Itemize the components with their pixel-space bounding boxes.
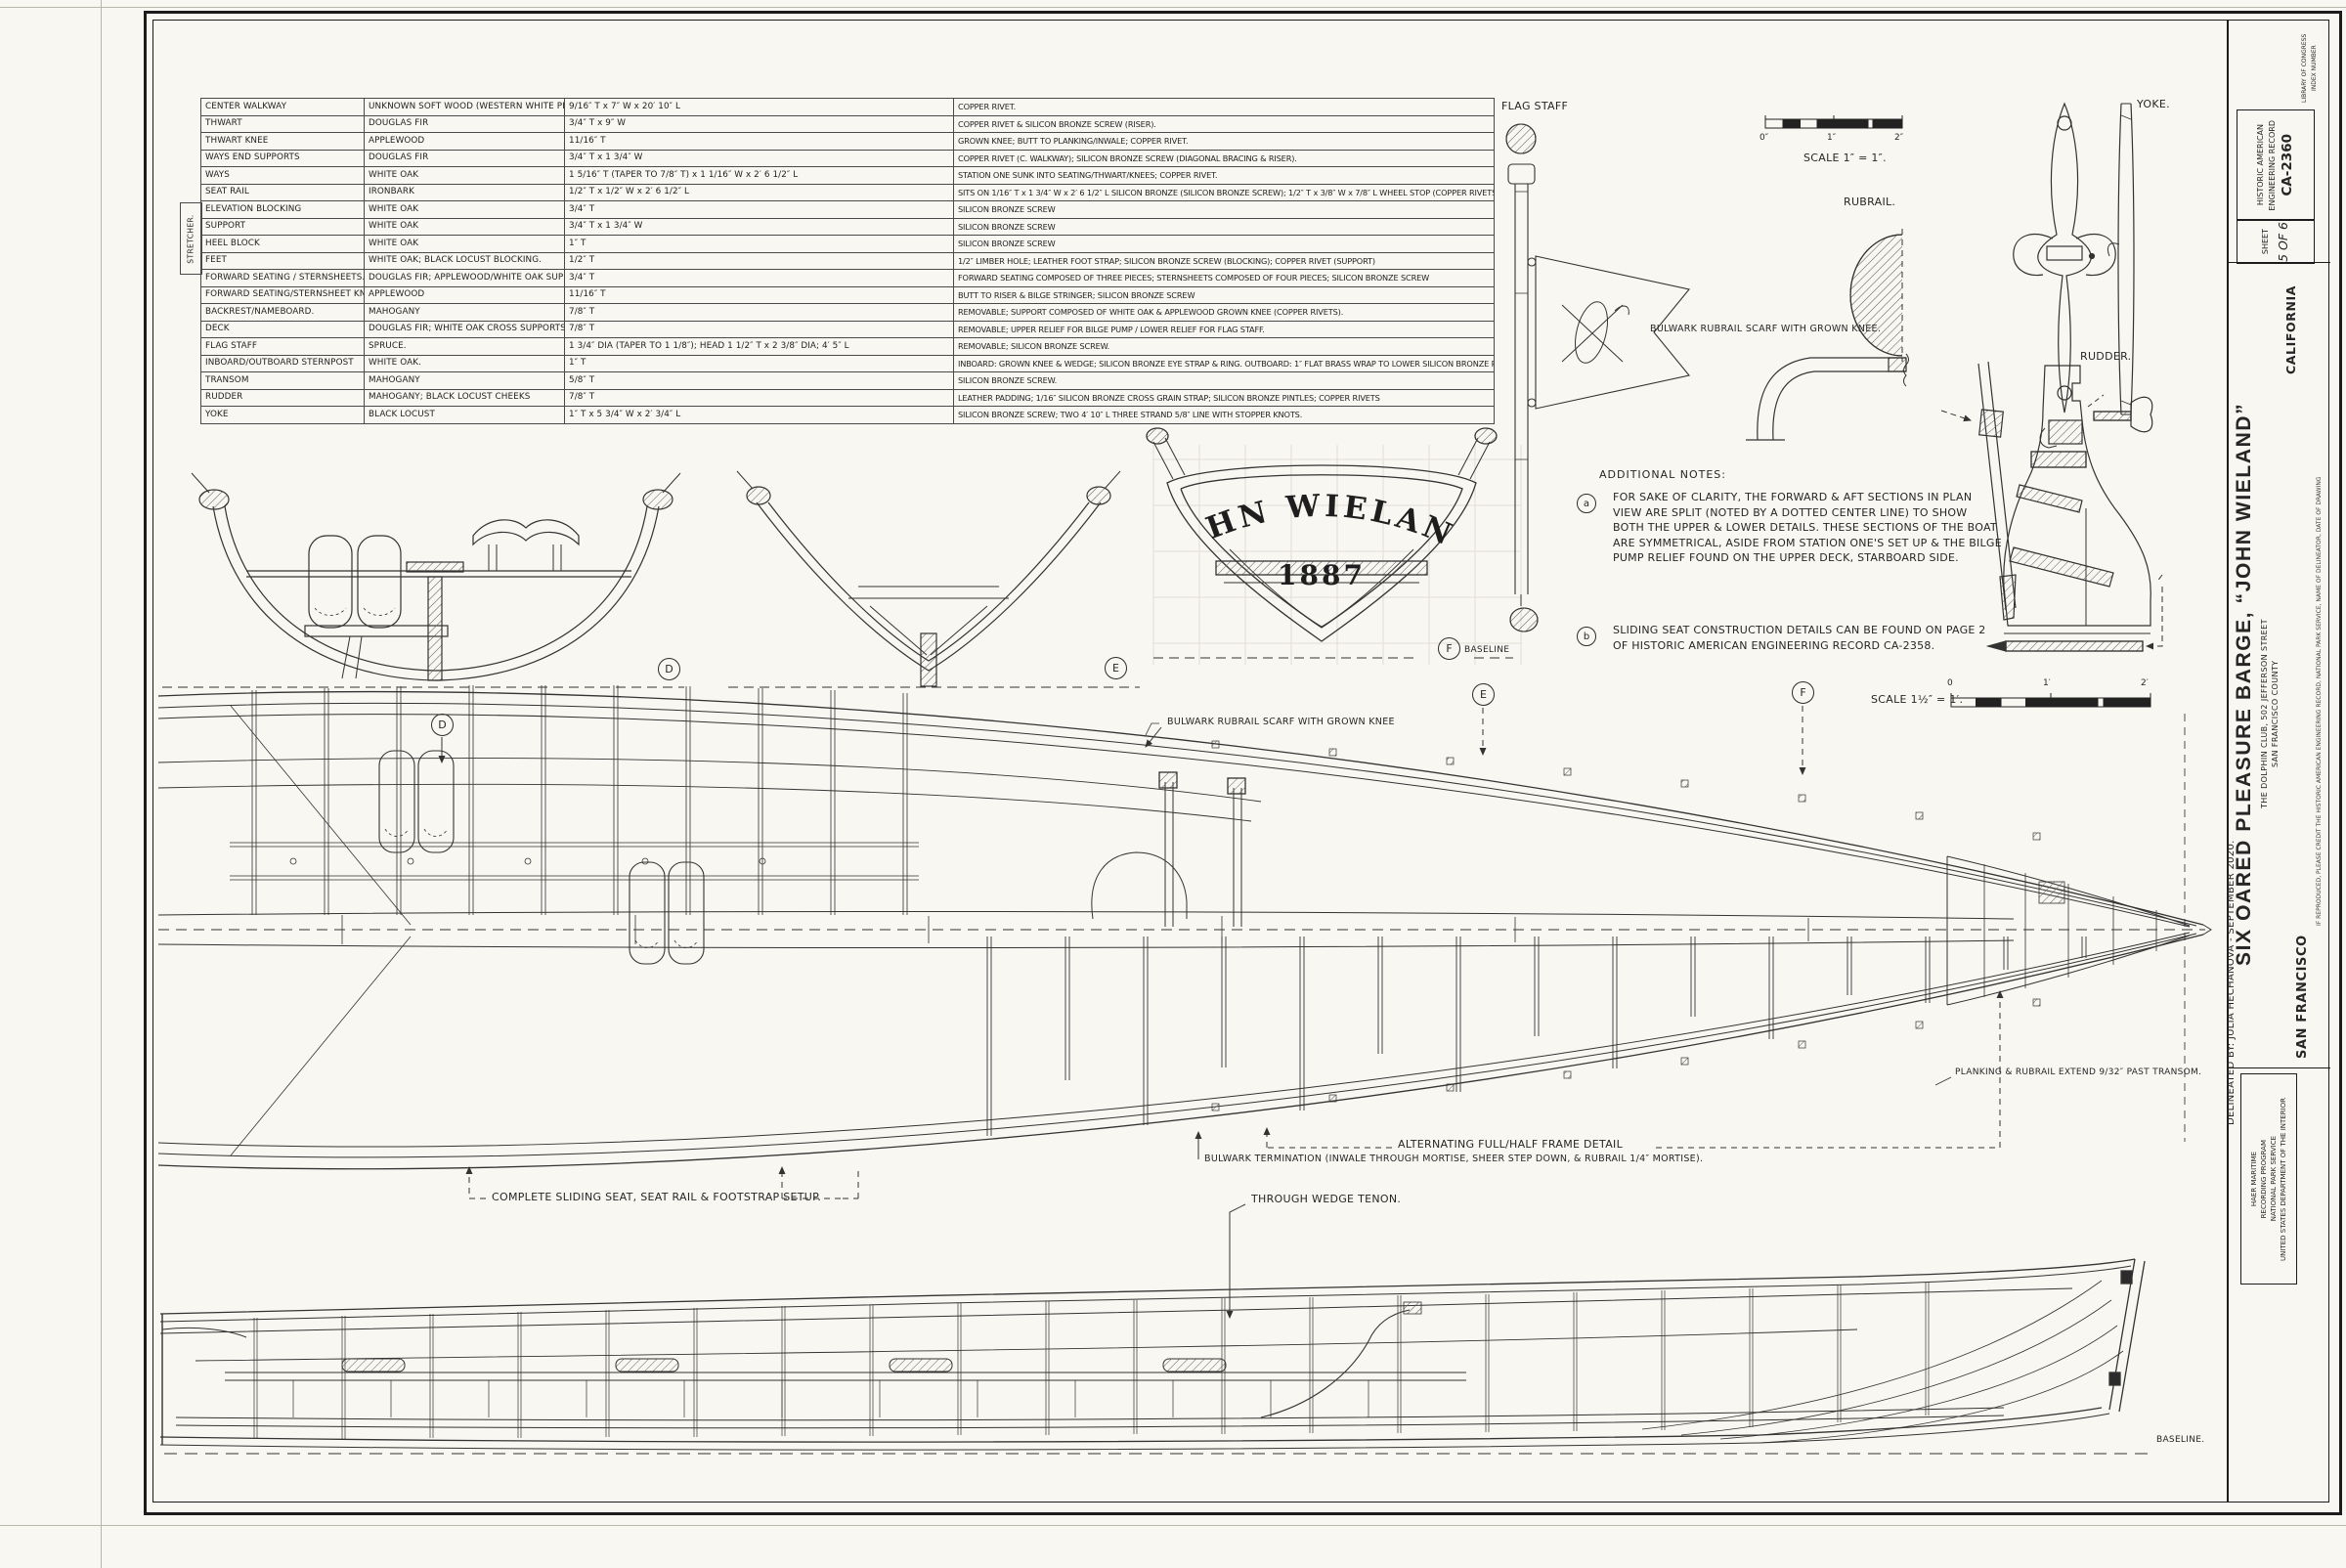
plan-f-marker: F <box>1792 681 1814 704</box>
scarf-label: BULWARK RUBRAIL SCARF WITH GROWN KNEE. <box>1650 324 1881 334</box>
record-number: CA-2360 <box>2280 134 2295 196</box>
plan-scarf-callout: BULWARK RUBRAIL SCARF WITH GROWN KNEE <box>1167 717 1395 727</box>
callout-leaders <box>442 706 2000 1318</box>
loc-label-line1: LIBRARY OF CONGRESS <box>2301 23 2308 113</box>
note-a-text: FOR SAKE OF CLARITY, THE FORWARD & AFT S… <box>1613 490 2002 566</box>
sections-baseline-label: BASELINE <box>1464 645 1509 655</box>
section-d-marker: D <box>658 658 680 680</box>
plan-scale-tick-0: 0 <box>1947 678 1953 688</box>
note-b-marker: b <box>1577 627 1596 646</box>
detail-scale-bar <box>1765 115 1902 128</box>
sheet-subtitle-1: THE DOLPHIN CLUB, 502 JEFFERSON STREET <box>2260 528 2269 899</box>
transom-year-text: 1887 <box>1278 559 1366 591</box>
plan-scale-tick-2: 2′ <box>2141 678 2149 688</box>
sheet-label: SHEET <box>2261 229 2270 254</box>
planking-callout: PLANKING & RUBRAIL EXTEND 9/32″ PAST TRA… <box>1955 1067 2201 1077</box>
agency-box: HAER MARITIME RECORDING PROGRAM NATIONAL… <box>2240 1073 2297 1285</box>
city-label: SAN FRANCISCO <box>2295 919 2310 1075</box>
record-line2: ENGINEERING RECORD <box>2268 120 2277 211</box>
plan-d-marker: D <box>431 714 454 736</box>
note-a-marker: a <box>1577 494 1596 513</box>
agency-line-1: HAER MARITIME <box>2250 1152 2258 1206</box>
agency-line-4: UNITED STATES DEPARTMENT OF THE INTERIOR <box>2280 1098 2287 1261</box>
sliding-seat-callout: COMPLETE SLIDING SEAT, SEAT RAIL & FOOTS… <box>492 1191 821 1203</box>
section-f-marker: F <box>1438 637 1460 660</box>
plan-view-drawing <box>158 685 2211 1169</box>
rubrail-drawing <box>1850 229 1902 362</box>
wedge-tenon-callout: THROUGH WEDGE TENON. <box>1251 1193 1401 1205</box>
transom-name-text: JOHN WIELAND <box>0 0 1459 554</box>
reproduction-credit: IF REPRODUCED, PLEASE CREDIT THE HISTORI… <box>2316 383 2323 1019</box>
notes-title: ADDITIONAL NOTES: <box>1599 468 1726 481</box>
haer-record-box: HISTORIC AMERICAN ENGINEERING RECORD CA-… <box>2237 109 2315 221</box>
sheet-number: 5 OF 6 <box>2276 222 2290 262</box>
section-e-drawing <box>728 471 1140 687</box>
pencil-grid <box>1153 445 1521 665</box>
delineated-by: DELINEATED BY: JULIA HECHANOVA - SEPTEMB… <box>2226 782 2237 1183</box>
section-d-drawing <box>162 473 684 687</box>
loc-label-line2: INDEX NUMBER <box>2311 23 2318 113</box>
detail-scale-label: SCALE 1″ = 1″. <box>1803 152 1887 164</box>
rudder-label: RUDDER. <box>2080 350 2131 363</box>
titleblock-divider <box>2227 20 2229 1503</box>
rubrail-label: RUBRAIL. <box>1844 196 1895 208</box>
section-e-marker: E <box>1105 657 1127 679</box>
plan-scale-label: SCALE 1½″ = 1′. <box>1871 693 1963 706</box>
state-label: CALIFORNIA <box>2283 266 2298 393</box>
plan-scale-tick-1: 1′ <box>2043 678 2051 688</box>
transom-drawing: JOHN WIELAND 1887 <box>0 0 1513 658</box>
agency-line-2: RECORDING PROGRAM <box>2260 1140 2268 1218</box>
agency-line-3: NATIONAL PARK SERVICE <box>2270 1136 2278 1221</box>
plan-e-marker: E <box>1472 683 1495 706</box>
detail-scale-tick-2: 2″ <box>1894 133 1903 143</box>
frame-detail-callout: ALTERNATING FULL/HALF FRAME DETAIL <box>1398 1138 1623 1151</box>
drawing-sheet: CENTER WALKWAYUNKNOWN SOFT WOOD (WESTERN… <box>0 0 2346 1568</box>
svg-text:JOHN WIELAND: JOHN WIELAND <box>0 0 1459 554</box>
note-b-text: SLIDING SEAT CONSTRUCTION DETAILS CAN BE… <box>1613 623 2002 653</box>
profile-view-drawing <box>160 1259 2150 1454</box>
sheet-number-box: SHEET 5 OF 6 <box>2237 219 2315 264</box>
detail-scale-tick-0: 0″ <box>1759 133 1768 143</box>
detail-scale-tick-1: 1″ <box>1827 133 1836 143</box>
drawing-linework: JOHN WIELAND 1887 <box>0 0 2346 1568</box>
flag-staff-label: FLAG STAFF <box>1501 100 1568 112</box>
bulwark-termination-callout: BULWARK TERMINATION (INWALE THROUGH MORT… <box>1204 1154 1703 1164</box>
yoke-label: YOKE. <box>2137 98 2170 110</box>
scarf-drawing <box>1746 354 1909 440</box>
profile-baseline-label: BASELINE. <box>2156 1435 2204 1445</box>
sheet-subtitle-2: SAN FRANCISCO COUNTY <box>2271 547 2280 880</box>
record-line1: HISTORIC AMERICAN <box>2256 124 2265 205</box>
